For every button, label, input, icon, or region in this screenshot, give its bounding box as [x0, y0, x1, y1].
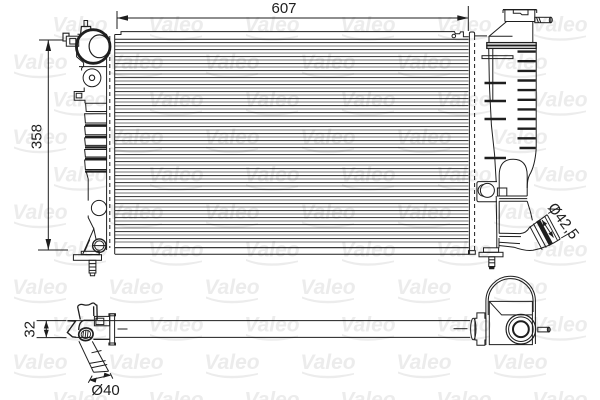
svg-text:32: 32	[22, 321, 39, 338]
